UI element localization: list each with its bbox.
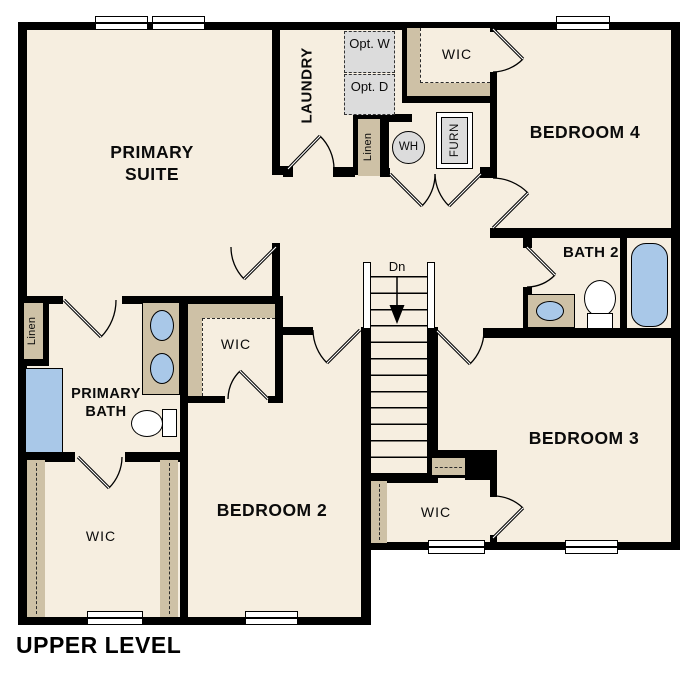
exterior-wall-right (671, 22, 680, 550)
plan-title: UPPER LEVEL (16, 632, 181, 659)
interior-wall (380, 168, 390, 177)
exterior-wall-bottom-left (18, 617, 371, 625)
window (565, 540, 618, 554)
stair-treads (371, 276, 427, 474)
interior-wall (523, 238, 532, 248)
interior-wall (180, 395, 225, 403)
shelf-dash-line (379, 484, 380, 540)
interior-wall (432, 450, 497, 458)
window (245, 611, 298, 625)
shelf-dash-line (169, 463, 170, 614)
interior-wall (490, 22, 497, 32)
interior-wall (268, 395, 283, 403)
window (95, 16, 148, 30)
toilet-tank (162, 409, 177, 437)
toilet-bowl (584, 280, 616, 317)
interior-wall (490, 535, 497, 544)
room-label-bedroom-3: BEDROOM 3 (504, 428, 664, 450)
interior-wall (490, 228, 680, 238)
window (87, 611, 143, 625)
interior-wall (490, 480, 497, 497)
interior-wall (490, 72, 497, 178)
room-label-primary-suite: PRIMARY SUITE (92, 142, 212, 186)
interior-wall (272, 22, 280, 175)
window (556, 16, 610, 30)
room-label-wic-bottom-left: WIC (71, 528, 131, 546)
window (152, 16, 205, 30)
closet-shelf-edge (202, 318, 275, 396)
sink (150, 310, 174, 341)
exterior-wall-bottom-right (363, 542, 680, 550)
label-linen-hall: Linen (26, 304, 40, 358)
label-optional-washer: Opt. W (344, 36, 395, 52)
room-label-wic-middle: WIC (206, 336, 266, 354)
room-label-wic-bottom-middle: WIC (406, 504, 466, 522)
interior-wall (283, 327, 313, 335)
room-label-wic-top: WIC (427, 46, 487, 64)
interior-wall (125, 452, 188, 462)
interior-wall (283, 166, 293, 177)
room-label-bedroom-2: BEDROOM 2 (192, 500, 352, 522)
room-label-laundry: LAUNDRY (299, 30, 318, 140)
toilet-tank (587, 313, 613, 329)
interior-wall (333, 167, 355, 177)
room-label-primary-bath: PRIMARY BATH (56, 385, 156, 421)
label-linen-upper: Linen (362, 122, 376, 172)
label-optional-dryer: Opt. D (344, 79, 395, 95)
window (428, 540, 485, 554)
shelf-dash-line (36, 463, 37, 614)
shelf-dash-line (435, 467, 462, 468)
label-stairs-down: Dn (382, 259, 412, 275)
interior-wall (483, 328, 680, 338)
interior-wall (24, 358, 49, 366)
stair-rail-left (363, 262, 371, 329)
room-label-bedroom-4: BEDROOM 4 (505, 122, 665, 144)
interior-wall (620, 238, 627, 330)
room-label-bath-2: BATH 2 (561, 244, 621, 263)
interior-wall (275, 296, 283, 403)
stair-rail-right (427, 262, 435, 329)
interior-wall (272, 243, 280, 304)
bathtub (631, 243, 668, 327)
sink (536, 301, 564, 321)
interior-wall (407, 96, 497, 103)
interior-wall (432, 475, 465, 478)
label-water-heater: WH (392, 140, 425, 154)
sink (150, 353, 174, 384)
interior-wall (480, 167, 497, 178)
interior-wall (43, 300, 49, 366)
interior-wall-pillar (465, 458, 497, 480)
floor-area-lower-left (22, 546, 367, 621)
floor-plan: PRIMARY SUITE LAUNDRY BEDROOM 4 BATH 2 P… (0, 0, 687, 687)
label-furnace: FURN (448, 113, 462, 167)
